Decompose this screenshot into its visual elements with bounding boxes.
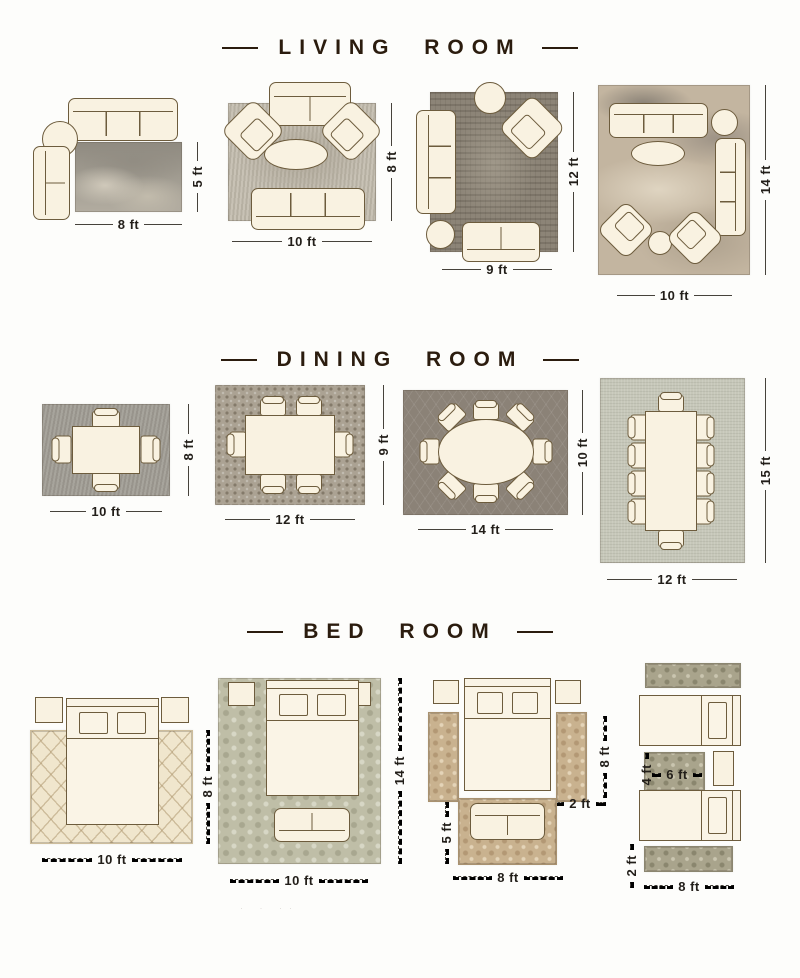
bed [464,678,551,791]
width-label: 14 ft [471,522,500,537]
nightstand [713,751,734,786]
dining-chair [141,436,158,464]
dining-chair [533,439,550,465]
height-label: 9 ft [376,434,391,456]
loveseat [462,222,540,262]
width-dimension: 14 ft [418,522,553,537]
bed [266,680,359,796]
bench-loveseat [274,808,350,842]
width-dimension: 10 ft [50,504,162,519]
height-label: 15 ft [758,456,773,485]
height-label: 8 ft [384,151,399,173]
runner-rug [645,663,741,688]
twin-bed [639,695,741,746]
rug-size-guide: LIVING ROOM 8 ft 5 ft 10 ft 8 ft [0,0,800,978]
foot-rug-width-label: 8 ft [497,870,519,885]
mid-rug-width-label: 6 ft [666,767,688,782]
oval-dining-table [438,419,534,485]
width-label: 10 ft [91,504,120,519]
width-label: 10 ft [284,873,313,888]
height-dimension: 8 ft [384,103,399,221]
dining-chair [296,474,322,491]
pillow [279,694,308,716]
dining-table [72,426,140,474]
living-room-layout-8x5: 8 ft 5 ft [30,95,230,245]
width-dimension: 9 ft [442,262,552,277]
title-dash [542,47,578,49]
height-dimension: 15 ft [758,378,773,563]
height-label: 5 ft [190,166,205,188]
dining-chair [695,443,712,469]
section-title-text: BED ROOM [303,620,497,644]
round-side-table [474,82,506,114]
dining-chair [695,415,712,441]
runner-length-dimension: 8 ft [597,716,612,798]
dining-chair [695,471,712,497]
dining-chair [658,530,684,547]
dining-room-layout-12x9: 12 ft 9 ft [210,378,390,526]
height-dimension: 5 ft [190,142,205,212]
runner-length-dimension: 8 ft [644,879,734,894]
living-room-layout-10x14: 10 ft 14 ft [592,78,787,308]
title-dash [247,631,283,633]
section-title-text: LIVING ROOM [278,36,521,60]
title-dash [517,631,553,633]
width-dimension: 10 ft [232,234,372,249]
pillow [117,712,146,734]
width-dimension: 10 ft [617,288,732,303]
dining-chair [658,395,684,412]
sofa-3-seat [68,98,178,141]
dining-chair [296,399,322,416]
section-title-bed-room: BED ROOM [0,620,800,644]
dining-chair [92,472,120,489]
section-title-text: DINING ROOM [277,348,524,372]
sofa-3-seat [251,188,365,230]
bench-loveseat [470,803,545,840]
height-dimension: 9 ft [376,385,391,505]
nightstand [433,680,459,704]
runner-length-label: 8 ft [678,879,700,894]
foot-rug-height-dimension: 5 ft [439,802,454,864]
nightstand [161,697,189,723]
bed-room-layout-twin-beds: 4 ft 6 ft 2 ft 8 ft [622,655,797,895]
dining-chair [230,432,247,458]
runner-width-label: 2 ft [624,855,639,877]
runner-rug [644,846,733,872]
title-dash [543,359,579,361]
area-rug [75,142,182,212]
width-dimension: 12 ft [607,572,737,587]
dining-chair [334,432,351,458]
pillow [317,694,346,716]
dining-room-layout-10x8: 10 ft 8 ft [35,396,205,521]
height-label: 14 ft [392,756,407,785]
height-dimension: 8 ft [181,404,196,496]
runner-rug [428,712,459,802]
bed-room-layout-10x8: 10 ft 8 ft [22,692,217,877]
nightstand [555,680,581,704]
dining-chair [55,436,72,464]
height-dimension: 14 ft [392,678,407,864]
dining-chair [695,499,712,525]
title-dash [222,47,258,49]
chaise-sofa [33,146,70,220]
height-label: 12 ft [566,157,581,186]
round-side-table [711,109,738,136]
nightstand [228,682,255,706]
bed-room-layout-runners: 8 ft 2 ft 5 ft 8 ft [425,672,620,884]
oval-coffee-table [264,139,328,170]
pillow [79,712,108,734]
dining-chair [260,399,286,416]
runner-rug [556,712,587,802]
width-dimension: 10 ft [230,873,368,888]
height-label: 14 ft [758,165,773,194]
dining-table [245,415,335,475]
pillow [708,797,727,833]
dining-chair [260,474,286,491]
nightstand [35,697,63,723]
sofa-3-seat [715,138,746,236]
pillow [708,702,727,738]
foot-rug-width-dimension: 8 ft [453,870,563,885]
dining-table [645,411,697,531]
width-label: 12 ft [275,512,304,527]
dining-room-layout-14x10: 14 ft 10 ft [398,383,588,531]
dining-chair [473,483,499,500]
oval-coffee-table [631,141,685,166]
twin-bed [639,790,741,841]
runner-width-label: 2 ft [569,796,591,811]
dining-chair [423,439,440,465]
dining-room-layout-12x15: 12 ft 15 ft [595,372,790,592]
runner-length-label: 8 ft [597,746,612,768]
width-label: 8 ft [118,217,140,232]
living-room-layout-9x12: 9 ft 12 ft [412,80,587,280]
width-label: 10 ft [287,234,316,249]
bed [66,698,159,825]
width-label: 10 ft [97,852,126,867]
height-label: 10 ft [575,438,590,467]
height-dimension: 14 ft [758,85,773,275]
width-label: 10 ft [660,288,689,303]
pillow [477,692,503,714]
sofa-3-seat [609,103,708,138]
height-label: 8 ft [181,439,196,461]
faint-watermark-marks: · · ·· [240,903,299,913]
height-dimension: 10 ft [575,390,590,515]
runner-width-dimension: 2 ft [554,796,606,811]
title-dash [221,359,257,361]
round-side-table [426,220,455,249]
section-title-living-room: LIVING ROOM [0,36,800,60]
width-label: 9 ft [486,262,508,277]
bed-room-layout-10x14: 10 ft 14 ft [212,668,407,886]
runner-width-dimension: 2 ft [624,844,639,874]
height-dimension: 12 ft [566,92,581,252]
width-dimension: 10 ft [42,852,182,867]
section-title-dining-room: DINING ROOM [0,348,800,372]
mid-rug-width-dimension: 6 ft [652,767,702,782]
sofa-3-seat [416,110,456,214]
living-room-layout-10x8: 10 ft 8 ft [222,82,402,252]
width-label: 12 ft [657,572,686,587]
dining-chair [473,403,499,420]
width-dimension: 12 ft [225,512,355,527]
pillow [512,692,538,714]
foot-rug-height-label: 5 ft [439,822,454,844]
width-dimension: 8 ft [75,217,182,232]
